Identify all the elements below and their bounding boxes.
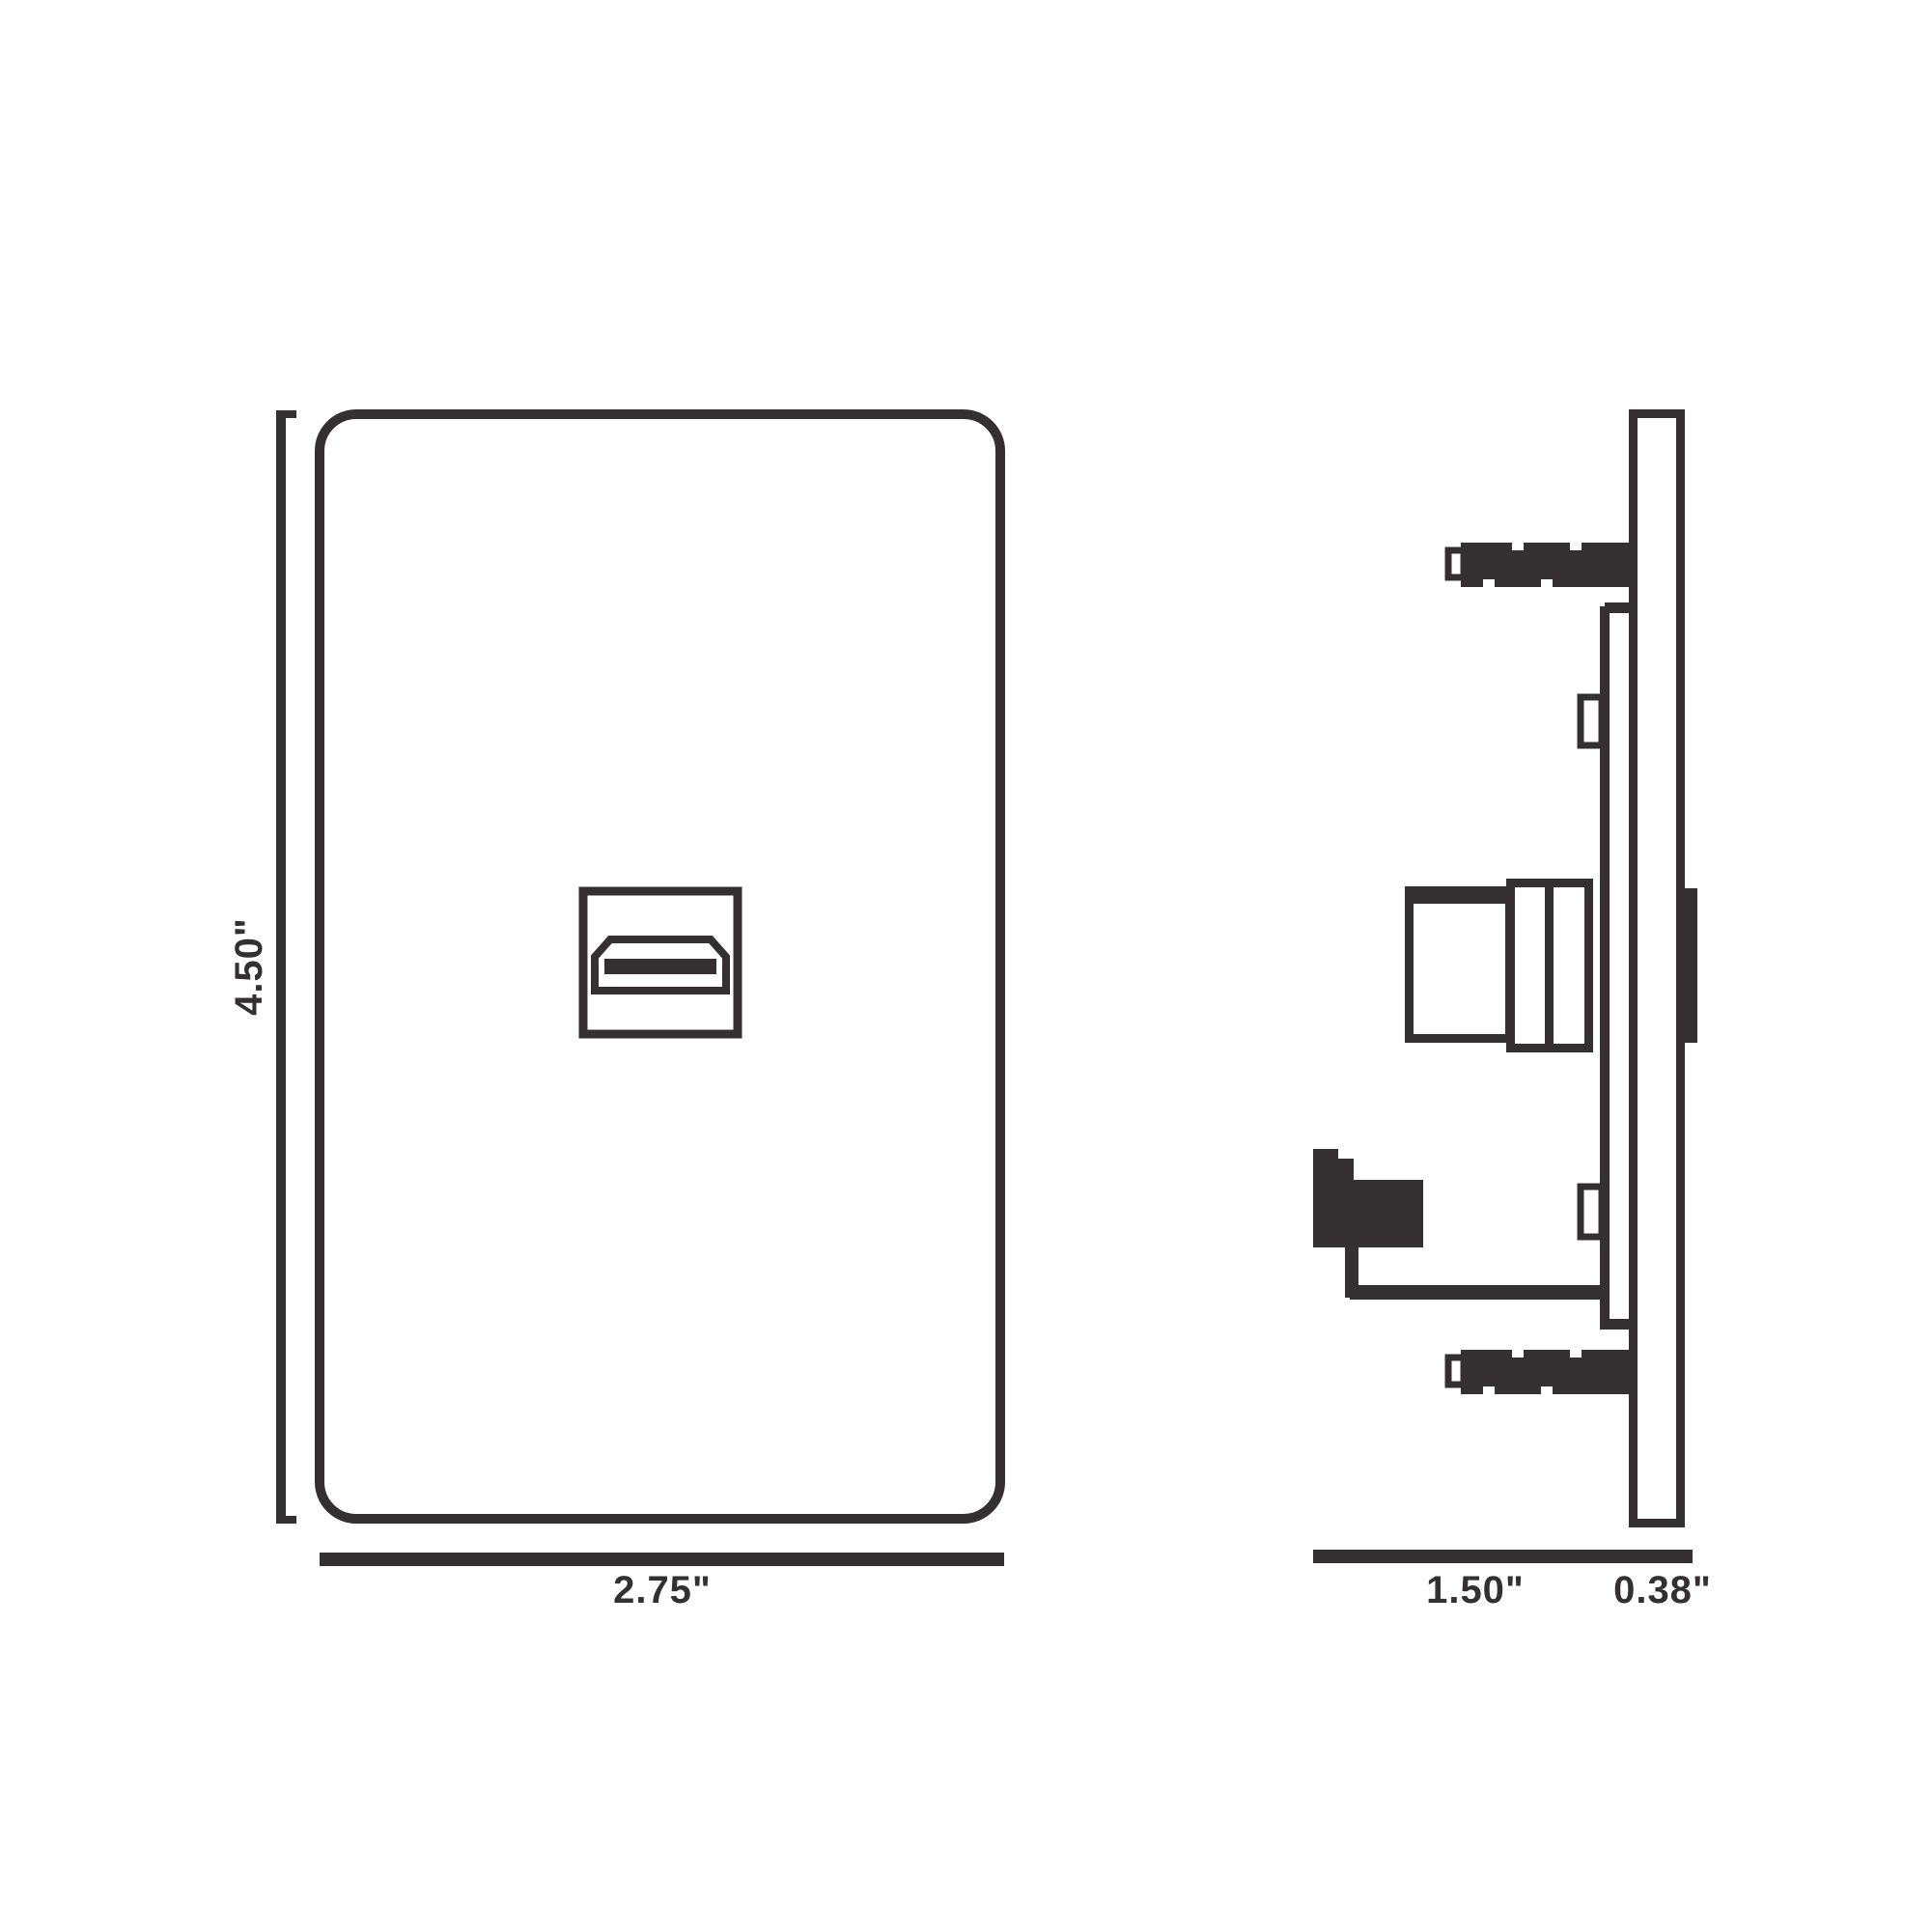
side-hdmi-port-bump [1685,888,1697,1043]
keystone-flange-divider [1545,882,1554,1049]
top-screw-thread [1512,543,1524,550]
hdmi-cable-plug [1313,1149,1603,1300]
bottom-screw-thread [1483,1386,1495,1394]
bracket-lower-clip [1581,1187,1602,1237]
bottom-screw-thread [1570,1350,1582,1358]
bottom-mounting-screw [1448,1350,1630,1394]
height-dimension-label: 4.50" [228,917,270,1016]
bottom-screw-thread [1541,1386,1553,1394]
bottom-screw-thread [1512,1350,1524,1358]
keystone-body [1410,893,1510,1039]
wall-plate-dimension-drawing: 4.50" 2.75" [0,0,1932,1932]
height-dimension-bottom-tick [276,1516,296,1524]
depth-dimension-label: 1.50" [1426,1569,1525,1611]
top-screw-thread [1483,579,1495,587]
top-screw-head [1448,550,1464,577]
hdmi-keystone-module [1405,882,1589,1049]
side-view: 1.50" 0.38" [1313,414,1712,1612]
top-screw-thread [1570,543,1582,550]
top-mounting-screw [1448,543,1632,587]
height-dimension-line-bar [276,410,286,1524]
plug-body [1350,1180,1423,1247]
height-dimension-top-tick [276,410,296,418]
hdmi-connector-tongue [604,959,716,974]
front-view: 4.50" 2.75" [228,410,1004,1611]
bracket-bottom-step [1600,1319,1630,1330]
width-dimension-label: 2.75" [613,1569,712,1611]
depth-dimension-line [1313,1550,1693,1563]
top-screw-thread [1541,579,1553,587]
thickness-dimension-label: 0.38" [1613,1569,1712,1611]
bottom-screw-head [1448,1358,1464,1385]
cable-wire-horizontal [1350,1285,1603,1300]
height-dimension-line [276,410,296,1524]
bracket-upper-clip [1581,697,1602,745]
side-plate-outline [1634,414,1681,1524]
dimensional-drawing-canvas: 4.50" 2.75" [0,0,1932,1932]
width-dimension-line [320,1553,1004,1566]
keystone-body-top-bar [1405,886,1515,904]
hdmi-port-front [583,891,738,1034]
plug-strain-relief [1313,1159,1354,1247]
